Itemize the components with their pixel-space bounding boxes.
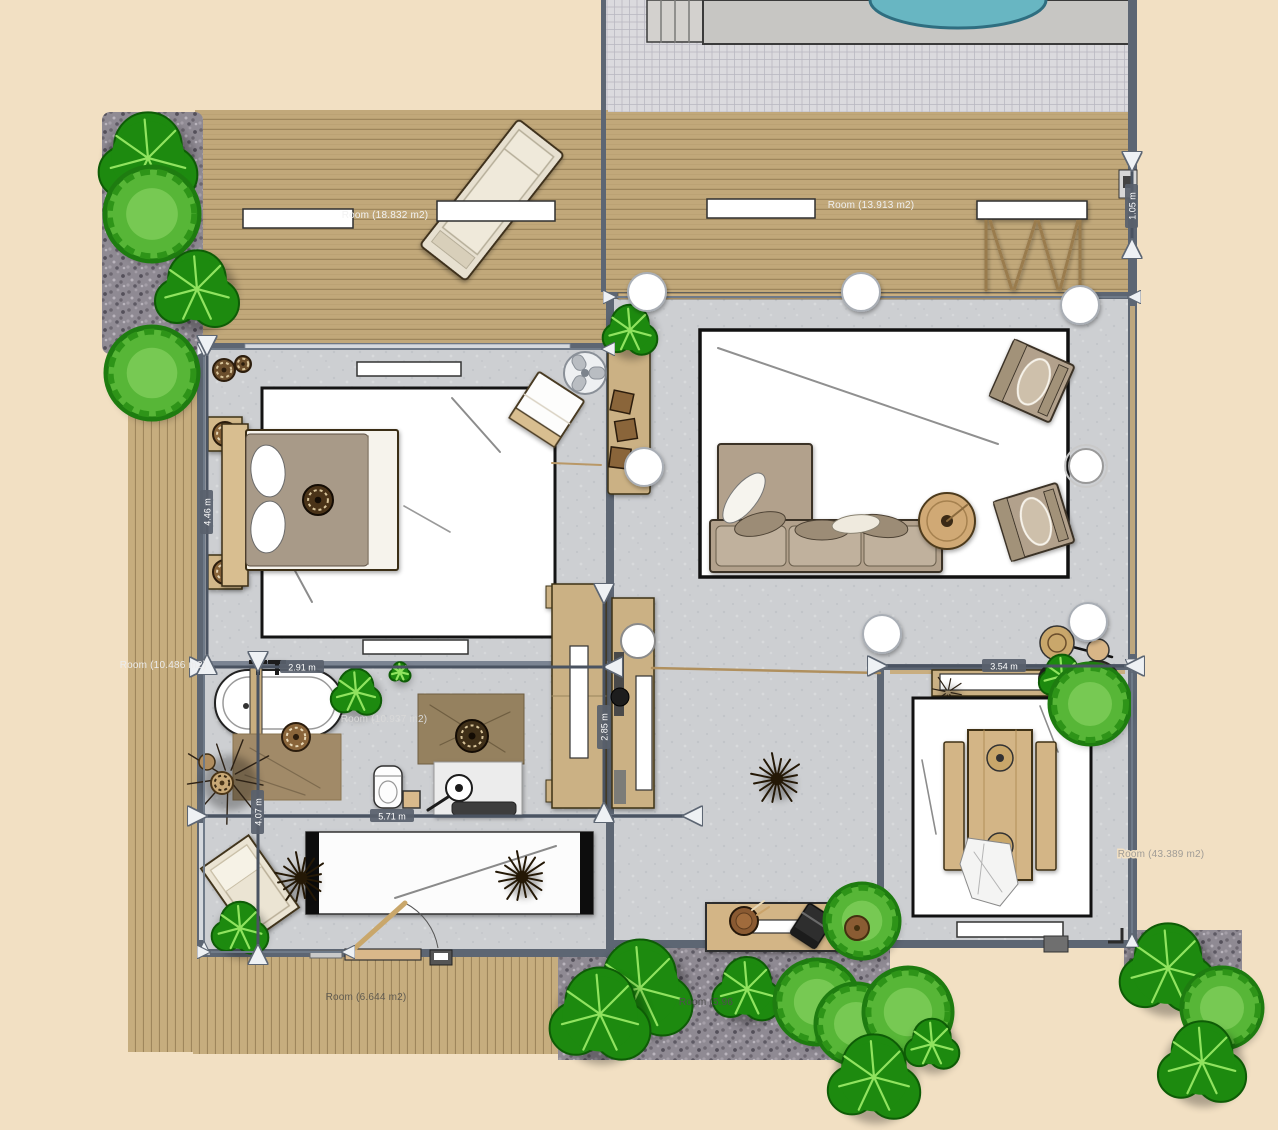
door-threshold-marker	[430, 950, 452, 965]
bush-top-left-4[interactable]	[106, 327, 198, 422]
cooktop-part	[455, 784, 463, 792]
measurement-text: 3.54 m	[990, 662, 1018, 672]
pool-steps[interactable]	[647, 0, 703, 42]
woven-stool-vanity[interactable]	[456, 720, 488, 752]
measurement-label-group: 1.05 m	[1125, 184, 1138, 228]
tree-trunk-part	[854, 925, 860, 931]
black-knob-sink[interactable]	[611, 688, 629, 706]
room-label: Room (13.913 m2)	[828, 200, 915, 211]
woven-stool-bath-part	[293, 734, 299, 740]
double-bed-part	[222, 424, 248, 586]
trestle-table-part	[977, 201, 1087, 219]
room-label: Room (6.644 m2)	[326, 992, 407, 1003]
dining-table-set-part	[996, 754, 1004, 762]
deck-shelf-top[interactable]	[243, 209, 353, 228]
hall-runner-rug[interactable]	[306, 832, 593, 914]
sphere-lamp-closet[interactable]	[621, 624, 655, 658]
bush-top-left-2[interactable]	[105, 167, 199, 264]
dining-shelf[interactable]	[957, 922, 1063, 937]
glass-wall-right	[1130, 306, 1135, 654]
sphere-floor-lamp[interactable]	[1065, 445, 1107, 487]
measurement-label-group: 5.71 m	[370, 809, 414, 822]
waste-bin[interactable]	[403, 791, 420, 808]
plant-console-living-part	[628, 328, 633, 333]
bush-dining-corner[interactable]	[1050, 664, 1130, 747]
closet-left-part	[570, 646, 588, 758]
measurement-label-group: 2.85 m	[597, 705, 610, 749]
rattan-starburst-hall-b-part	[516, 871, 528, 883]
measurement-text: 5.71 m	[378, 812, 406, 822]
woven-knob-a-part	[222, 368, 227, 373]
deck-bench-cross[interactable]	[437, 201, 555, 221]
tree-trunk[interactable]	[845, 916, 869, 940]
woven-knob-a[interactable]	[213, 359, 235, 381]
room-label: Room (18.832 m2)	[342, 210, 429, 221]
hall-runner-rug-part	[306, 832, 593, 914]
wall-shelf-b[interactable]	[363, 640, 468, 654]
cooktop-part	[452, 802, 516, 815]
plant-hallway-part	[238, 926, 243, 931]
bush-bottom-1-part	[638, 986, 643, 991]
measurement-text: 2.85 m	[600, 713, 610, 741]
room-label: Room (10.486 m2)	[120, 660, 207, 671]
ceiling-light[interactable]	[1069, 603, 1107, 641]
bathtub-part	[250, 667, 262, 739]
bush-top-left-1-part	[146, 156, 151, 161]
bush-bottom-2-part	[598, 1012, 603, 1017]
ceiling-fan[interactable]	[564, 352, 606, 394]
floorplan-svg: 2.91 m5.71 m3.54 m4.46 m4.07 m2.85 m1.05…	[0, 0, 1278, 1130]
ceiling-light[interactable]	[1061, 286, 1099, 324]
woven-stool-bath[interactable]	[282, 723, 310, 751]
toilet-part	[374, 766, 402, 808]
scene-root: 2.91 m5.71 m3.54 m4.46 m4.07 m2.85 m1.05…	[99, 0, 1262, 1124]
deck-bottom	[193, 954, 565, 1054]
measurement-text: 2.91 m	[288, 663, 316, 673]
measurement-label-group: 3.54 m	[982, 659, 1026, 672]
wall-patio-left	[601, 0, 606, 292]
closet-right-part	[636, 676, 652, 790]
room-label: Room (5.96	[679, 997, 733, 1008]
measurement-label-group: 2.91 m	[280, 660, 324, 673]
closet-right-part	[614, 770, 626, 804]
closet-left[interactable]	[546, 584, 606, 808]
room-label: Room (43.389 m2)	[1118, 849, 1205, 860]
ceiling-light[interactable]	[625, 448, 663, 486]
ceiling-light[interactable]	[842, 273, 880, 311]
woven-fan-decor-part	[1087, 639, 1109, 661]
measurement-label-group: 4.07 m	[251, 790, 264, 834]
ceiling-light[interactable]	[863, 615, 901, 653]
deck-shelf-right[interactable]	[707, 199, 815, 218]
basket-bath[interactable]	[211, 772, 233, 794]
window-hall-left	[199, 823, 203, 940]
floorplan-canvas: 2.91 m5.71 m3.54 m4.46 m4.07 m2.85 m1.05…	[0, 0, 1278, 1130]
coffee-table[interactable]	[919, 493, 975, 549]
bush-dining-corner-part	[1068, 682, 1112, 726]
bathtub-part	[249, 660, 267, 664]
bush-bottom-right-1-part	[1166, 966, 1171, 971]
dining-table-set-part	[1036, 742, 1056, 870]
cooktop[interactable]	[428, 762, 522, 816]
sphere-lamp-closet-part	[621, 624, 655, 658]
bush-top-left-2-part	[126, 188, 178, 240]
woven-decor-bed-part	[315, 497, 322, 504]
bush-bottom-7-part	[872, 1075, 877, 1080]
ceiling-light[interactable]	[628, 273, 666, 311]
sphere-floor-lamp-part	[1069, 449, 1103, 483]
dining-table-set-part	[944, 742, 964, 870]
plant-bathroom-part	[354, 690, 359, 695]
door-threshold-marker-part	[434, 953, 448, 960]
basket-bath-part	[220, 781, 225, 786]
measurement-text: 4.46 m	[203, 498, 213, 526]
woven-stool-vanity-part	[468, 732, 475, 739]
bush-top-left-3-part	[195, 287, 200, 292]
bush-bottom-right-3-part	[1200, 1060, 1205, 1065]
woven-decor-bed[interactable]	[303, 485, 333, 515]
toilet[interactable]	[374, 766, 402, 808]
rattan-starburst-hall-a-part	[295, 872, 307, 884]
bush-top-left-4-part	[127, 348, 178, 399]
ceiling-fan-part	[581, 369, 589, 377]
bush-bottom-3-part	[745, 987, 750, 992]
plate-with-food-part	[736, 913, 752, 929]
bush-bottom-8-part	[930, 1042, 935, 1047]
entry-door-part	[345, 949, 421, 960]
bathtub-part	[215, 670, 343, 736]
woven-basket-stack-part	[610, 390, 634, 414]
measurement-text: 4.07 m	[254, 798, 264, 826]
ceiling-fan-part	[589, 367, 605, 379]
bathtub-part	[243, 703, 249, 709]
room-label: Room (10.937 m2)	[341, 714, 428, 725]
woven-knob-b[interactable]	[235, 356, 251, 372]
wall-shelf-a[interactable]	[357, 362, 461, 376]
door-dining-bottom[interactable]	[1044, 936, 1068, 952]
plant-measure-line-part	[398, 670, 403, 675]
measurement-text: 1.05 m	[1128, 192, 1138, 220]
woven-knob-b-part	[241, 362, 245, 366]
measurement-label-group: 4.46 m	[200, 490, 213, 534]
basket-small[interactable]	[199, 754, 215, 770]
hall-runner-rug-part	[580, 832, 593, 914]
rattan-starburst-living-part	[771, 773, 783, 785]
woven-basket-stack-part	[615, 419, 638, 442]
